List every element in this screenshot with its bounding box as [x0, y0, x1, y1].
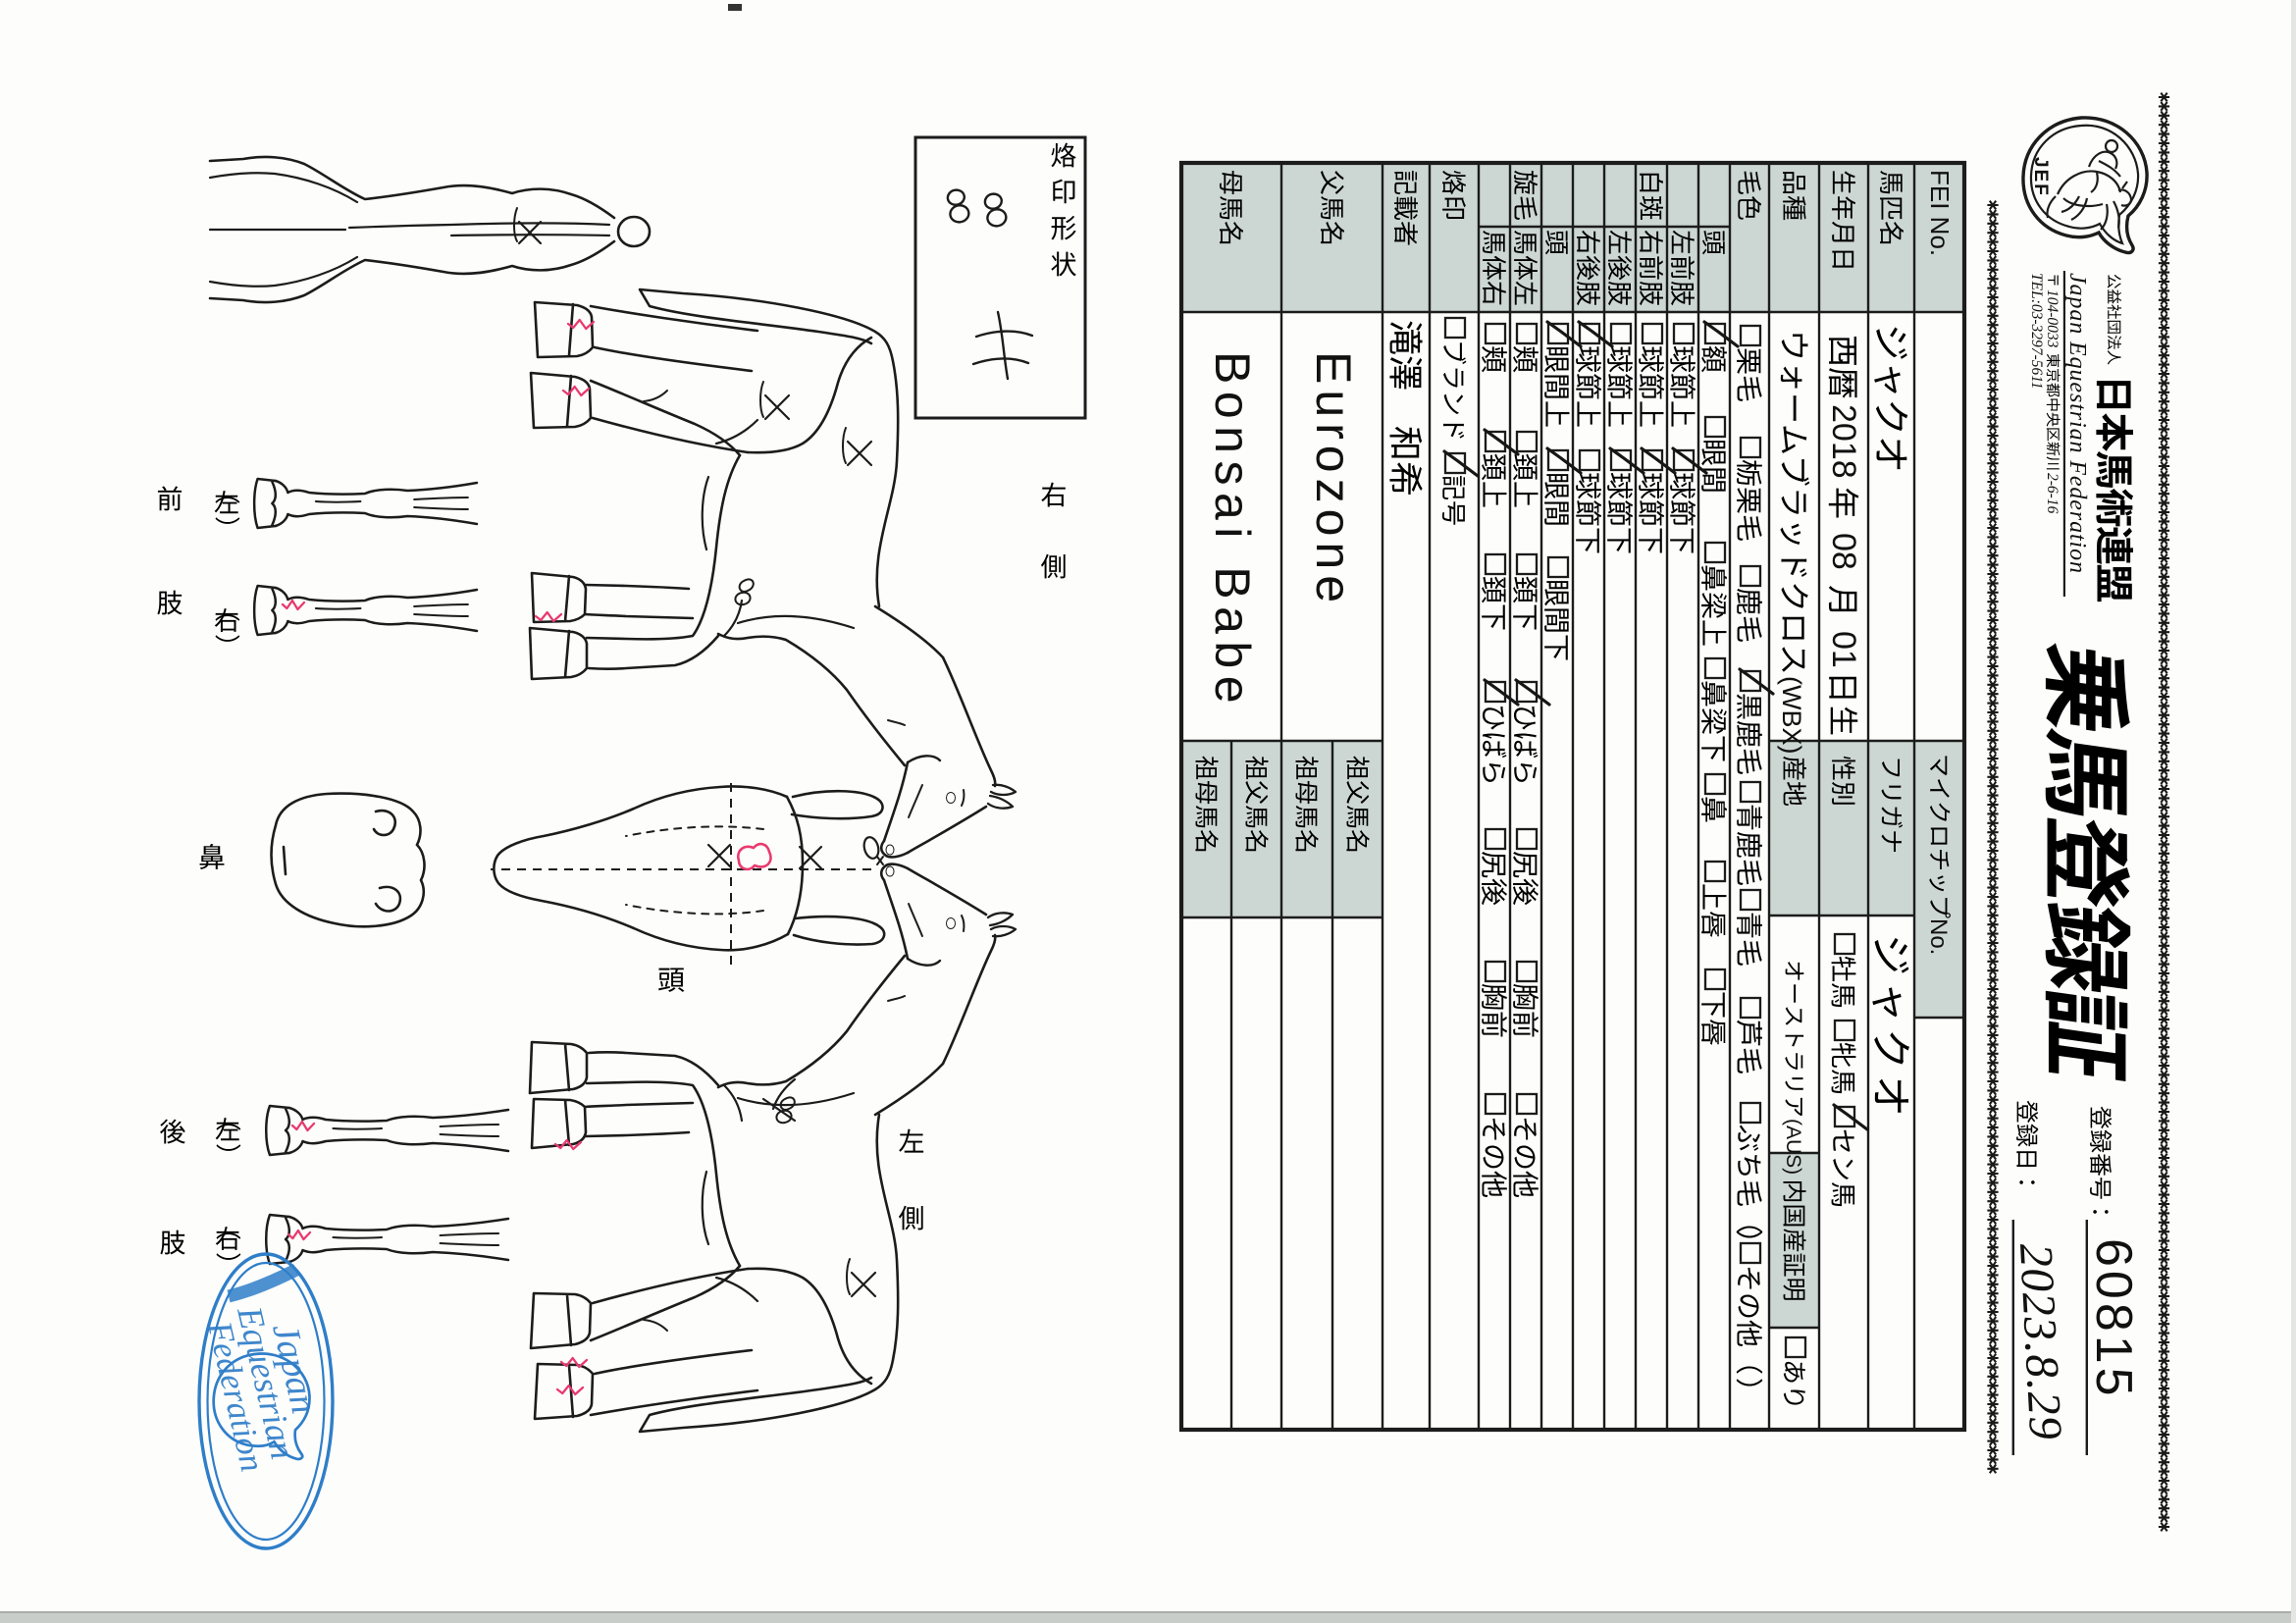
svg-text:104-0033: 104-0033	[2044, 289, 2061, 348]
svg-text:2023.8.29: 2023.8.29	[2009, 1242, 2071, 1441]
svg-text:08: 08	[1825, 533, 1862, 570]
svg-text:JEF: JEF	[2030, 157, 2051, 197]
svg-text:60815: 60815	[2085, 1238, 2142, 1400]
svg-text:(AUS): (AUS)	[1782, 1119, 1804, 1175]
svg-text:Bonsai Babe: Bonsai Babe	[1205, 351, 1260, 710]
svg-text:01: 01	[1825, 631, 1862, 668]
svg-text:FEI No.: FEI No.	[1925, 170, 1955, 256]
svg-text:2018: 2018	[1825, 404, 1862, 479]
svg-text:Eurozone: Eurozone	[1306, 351, 1361, 608]
svg-text:TEL:03-3297-5611: TEL:03-3297-5611	[2028, 273, 2045, 390]
svg-text:Japan Equestrian Federation: Japan Equestrian Federation	[2064, 273, 2090, 574]
svg-text:2-6-16: 2-6-16	[2044, 473, 2061, 514]
svg-text:No.: No.	[1925, 918, 1952, 955]
svg-text:(WBX): (WBX)	[1777, 676, 1806, 754]
